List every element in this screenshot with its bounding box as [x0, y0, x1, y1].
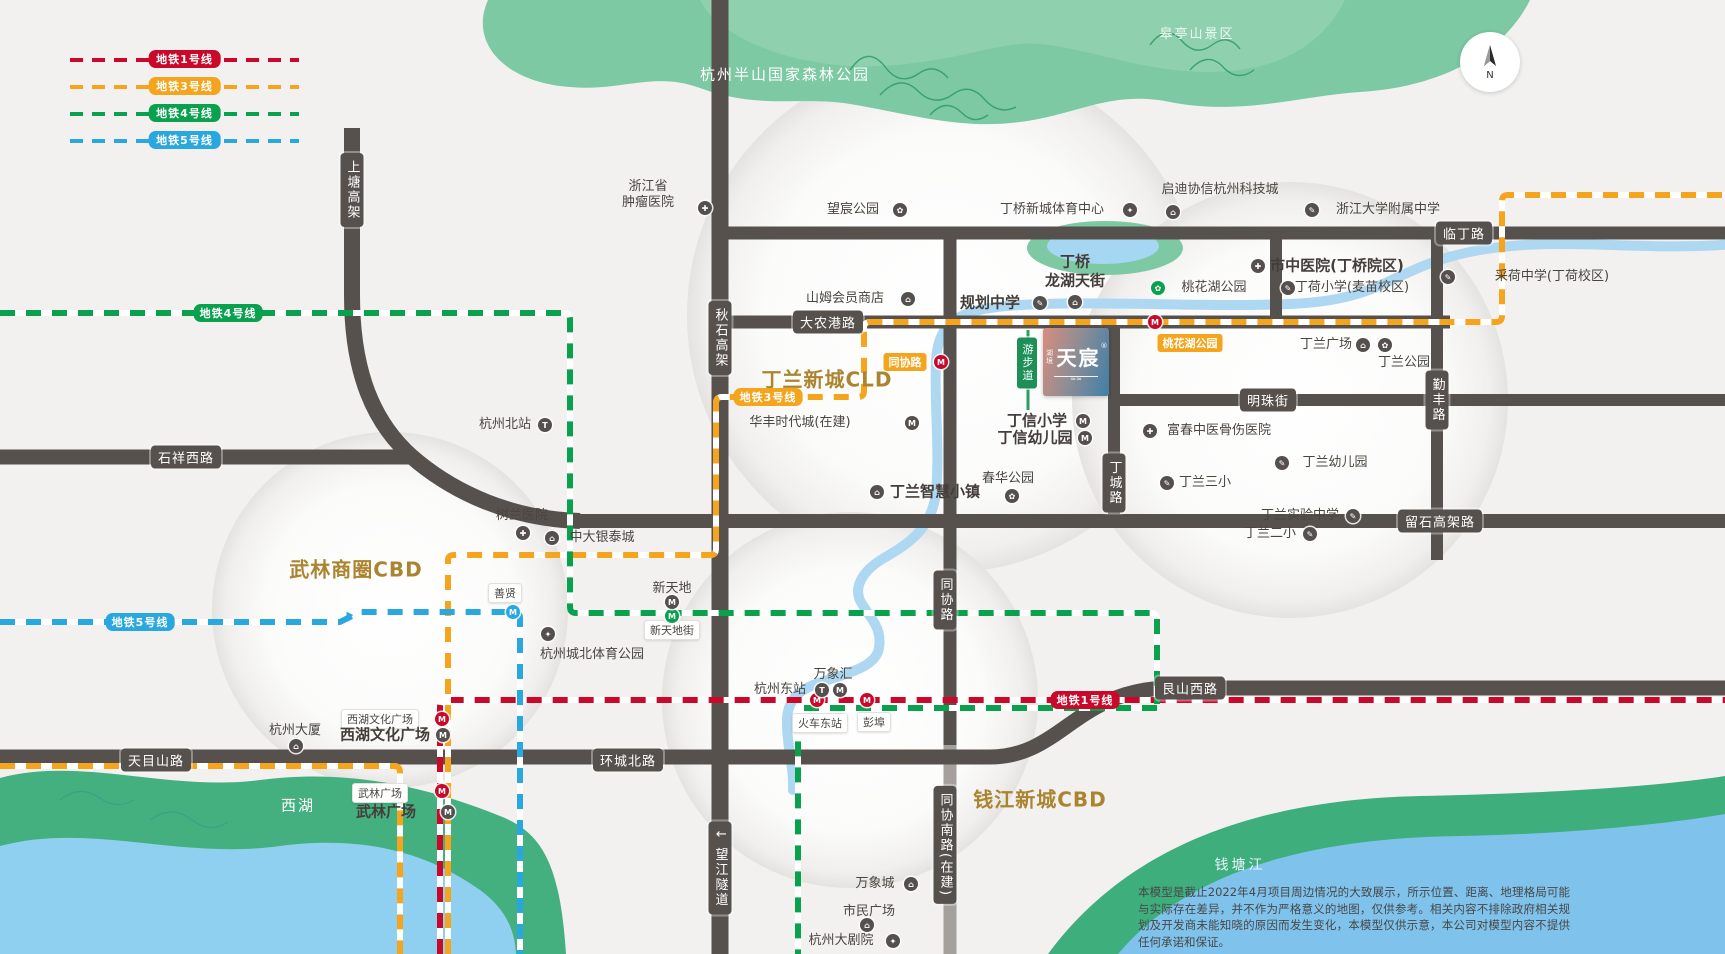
- poi-label: 采荷中学(丁荷校区): [1495, 269, 1609, 285]
- metro-station-orange-pill: 桃花湖公园: [1158, 334, 1223, 352]
- walkway-label: 游步道: [1017, 338, 1037, 389]
- poi-label: 丁兰三小: [1179, 475, 1231, 491]
- metro-station-icon: M: [435, 784, 449, 798]
- compass: N: [1460, 32, 1520, 92]
- poi-label: 市中医院(丁桥院区): [1270, 257, 1404, 276]
- metro-line-label: 地铁4号线: [194, 304, 263, 322]
- poi-icon: M: [833, 683, 847, 697]
- poi-icon: ✎: [1305, 203, 1319, 217]
- metro-station-icon: M: [665, 609, 679, 623]
- poi-icon: ⌂: [1356, 338, 1370, 352]
- poi-label: 丁信小学: [1007, 412, 1067, 431]
- poi-label: 杭州大厦: [269, 723, 321, 739]
- poi-label: 启迪协信杭州科技城: [1161, 182, 1278, 198]
- road-label: 上塘高架: [341, 153, 364, 227]
- station-pill: 新天地街: [644, 620, 700, 640]
- poi-icon: ✎: [1160, 476, 1174, 490]
- poi-label: 万象汇: [813, 667, 852, 683]
- road-label: 留石高架路: [1398, 510, 1482, 533]
- poi-label: 丁兰幼儿园: [1302, 455, 1367, 471]
- road-label: 艮山西路: [1155, 677, 1225, 700]
- poi-label: 丁兰智慧小镇: [890, 483, 980, 502]
- legend-label-line1: 地铁1号线: [148, 50, 221, 68]
- metro-station-icon: M: [506, 605, 520, 619]
- poi-label: 丁桥 龙湖天街: [1045, 252, 1105, 290]
- poi-icon: ✎: [1275, 456, 1289, 470]
- legend-item-line4: 地铁4号线: [62, 106, 307, 120]
- metro-station-icon: M: [860, 693, 874, 707]
- legend-label-line5: 地铁5号线: [148, 131, 221, 149]
- project-logo: 湖境 天宸 ® ≈≈: [1043, 328, 1109, 396]
- poi-label: 中大银泰城: [569, 530, 634, 546]
- poi-label: 桃花湖公园: [1181, 280, 1246, 296]
- poi-label: 万象城: [855, 876, 894, 892]
- road-label: 同协路: [934, 571, 957, 630]
- poi-label: 浙江大学附属中学: [1336, 202, 1440, 218]
- legend-label-line4: 地铁4号线: [148, 104, 221, 122]
- poi-icon: ✚: [1143, 424, 1157, 438]
- road-label: 秋石高架: [709, 301, 732, 375]
- legend-item-line3: 地铁3号线: [62, 79, 307, 93]
- poi-icon: M: [436, 728, 450, 742]
- poi-icon: ✿: [1005, 489, 1019, 503]
- cbd-label: 钱江新城CBD: [973, 788, 1107, 813]
- forest-park-shape: [483, 0, 1530, 124]
- poi-icon: ✎: [1281, 281, 1295, 295]
- poi-label: 春华公园: [982, 471, 1034, 487]
- poi-icon: ⌂: [545, 531, 559, 545]
- poi-label: 望宸公园: [827, 202, 879, 218]
- area-label: 杭州半山国家森林公园: [700, 66, 870, 85]
- poi-icon: M: [905, 416, 919, 430]
- poi-label: ▶: [347, 610, 354, 621]
- road-label: 丁城路: [1103, 454, 1126, 513]
- poi-icon: ✚: [516, 526, 530, 540]
- station-pill: 善贤: [488, 583, 522, 603]
- poi-icon: ✿: [893, 203, 907, 217]
- poi-icon: ✚: [698, 201, 712, 215]
- road-label: 同协南路(在建): [934, 786, 957, 904]
- road-label: 临丁路: [1436, 222, 1492, 245]
- poi-label: 西湖文化广场: [340, 726, 430, 745]
- poi-icon: M: [1078, 431, 1092, 445]
- cbd-label: 武林商圈CBD: [289, 558, 423, 583]
- road-label: 勤丰路: [1426, 371, 1449, 430]
- poi-icon: ⌂: [289, 739, 303, 753]
- road-label: 石祥西路: [151, 446, 221, 469]
- poi-icon: ⌂: [904, 877, 918, 891]
- station-pill: 火车东站: [792, 713, 848, 733]
- road-label: ↓ 望江隧道: [709, 821, 732, 914]
- poi-icon: ⌂: [860, 918, 874, 932]
- poi-icon: ✎: [1033, 296, 1047, 310]
- poi-icon: ✦: [886, 934, 900, 948]
- poi-label: 丁荷小学(麦苗校区): [1295, 280, 1409, 296]
- poi-label: 丁信幼儿园: [997, 429, 1072, 448]
- road-label: 大农港路: [793, 311, 863, 334]
- poi-icon: ✿: [1151, 281, 1165, 295]
- poi-label: 树兰医院: [496, 508, 548, 524]
- poi-label: 丁桥新城体育中心: [1000, 202, 1104, 218]
- project-name: 天宸: [1057, 342, 1101, 371]
- poi-icon: T: [815, 683, 829, 697]
- poi-icon: ⌂: [901, 292, 915, 306]
- metro-line-label: 地铁3号线: [734, 388, 803, 406]
- poi-label: 丁兰广场: [1300, 337, 1352, 353]
- metro-station-icon: M: [435, 712, 449, 726]
- poi-label: 丁兰二小: [1244, 526, 1296, 542]
- poi-icon: ✦: [541, 627, 555, 641]
- metro-station-icon: M: [934, 355, 948, 369]
- north-label: N: [1486, 70, 1493, 81]
- station-pill: 彭埠: [857, 712, 891, 732]
- legend-item-line1: 地铁1号线: [62, 52, 307, 66]
- poi-icon: M: [1076, 414, 1090, 428]
- poi-icon: ⌂: [1166, 205, 1180, 219]
- poi-label: 华丰时代城(在建): [749, 415, 850, 431]
- poi-icon: ✎: [1441, 270, 1455, 284]
- station-pill: 武林广场: [352, 783, 408, 803]
- metro-station-icon: M: [1148, 315, 1162, 329]
- legend-label-line3: 地铁3号线: [148, 77, 221, 95]
- poi-icon: T: [538, 418, 552, 432]
- metro-station-orange-pill: 同协路: [884, 353, 927, 371]
- road-label: 环城北路: [593, 749, 663, 772]
- poi-icon: ✦: [1123, 203, 1137, 217]
- poi-label: 杭州北站: [479, 417, 531, 433]
- road-label: 天目山路: [121, 749, 191, 772]
- metro-legend: 地铁1号线 地铁3号线 地铁4号线 地铁5号线: [62, 52, 307, 160]
- registered-mark: ®: [1101, 342, 1108, 350]
- metro-line-label: 地铁5号线: [106, 613, 175, 631]
- poi-label: 杭州东站: [754, 682, 806, 698]
- poi-icon: M: [665, 595, 679, 609]
- poi-label: 富春中医骨伤医院: [1167, 423, 1271, 439]
- poi-label: 武林广场: [356, 803, 416, 822]
- poi-icon: ⌂: [870, 485, 884, 499]
- road-label: 明珠街: [1240, 389, 1296, 412]
- map-canvas: .road{stroke:var(--road);fill:none;strok…: [0, 0, 1725, 954]
- area-label: 皋亭山景区: [1159, 27, 1234, 43]
- disclaimer-text: 本模型是截止2022年4月项目周边情况的大致展示，所示位置、距离、地理格局可能与…: [1138, 884, 1570, 951]
- poi-label: 浙江省 肿瘤医院: [622, 179, 674, 212]
- poi-label: 杭州城北体育公园: [540, 647, 644, 663]
- poi-label: 杭州大剧院: [808, 933, 873, 949]
- poi-icon: ✚: [1251, 259, 1265, 273]
- area-label: 钱塘江: [1215, 857, 1266, 875]
- poi-icon: M: [441, 805, 455, 819]
- project-prefix: 湖境: [1045, 349, 1055, 365]
- poi-label: 丁兰公园: [1378, 355, 1430, 371]
- area-label: 西湖: [281, 797, 315, 816]
- poi-label: 山姆会员商店: [806, 291, 884, 307]
- poi-icon: ✎: [1346, 509, 1360, 523]
- metro-line-label: 地铁1号线: [1051, 691, 1120, 709]
- poi-label: 规划中学: [960, 294, 1020, 313]
- poi-label: 丁兰实验中学: [1261, 508, 1339, 524]
- poi-icon: ⌂: [1068, 295, 1082, 309]
- poi-icon: ✎: [1303, 527, 1317, 541]
- project-wave-decoration: ≈≈: [1054, 376, 1098, 382]
- legend-item-line5: 地铁5号线: [62, 133, 307, 147]
- poi-icon: ✿: [1378, 338, 1392, 352]
